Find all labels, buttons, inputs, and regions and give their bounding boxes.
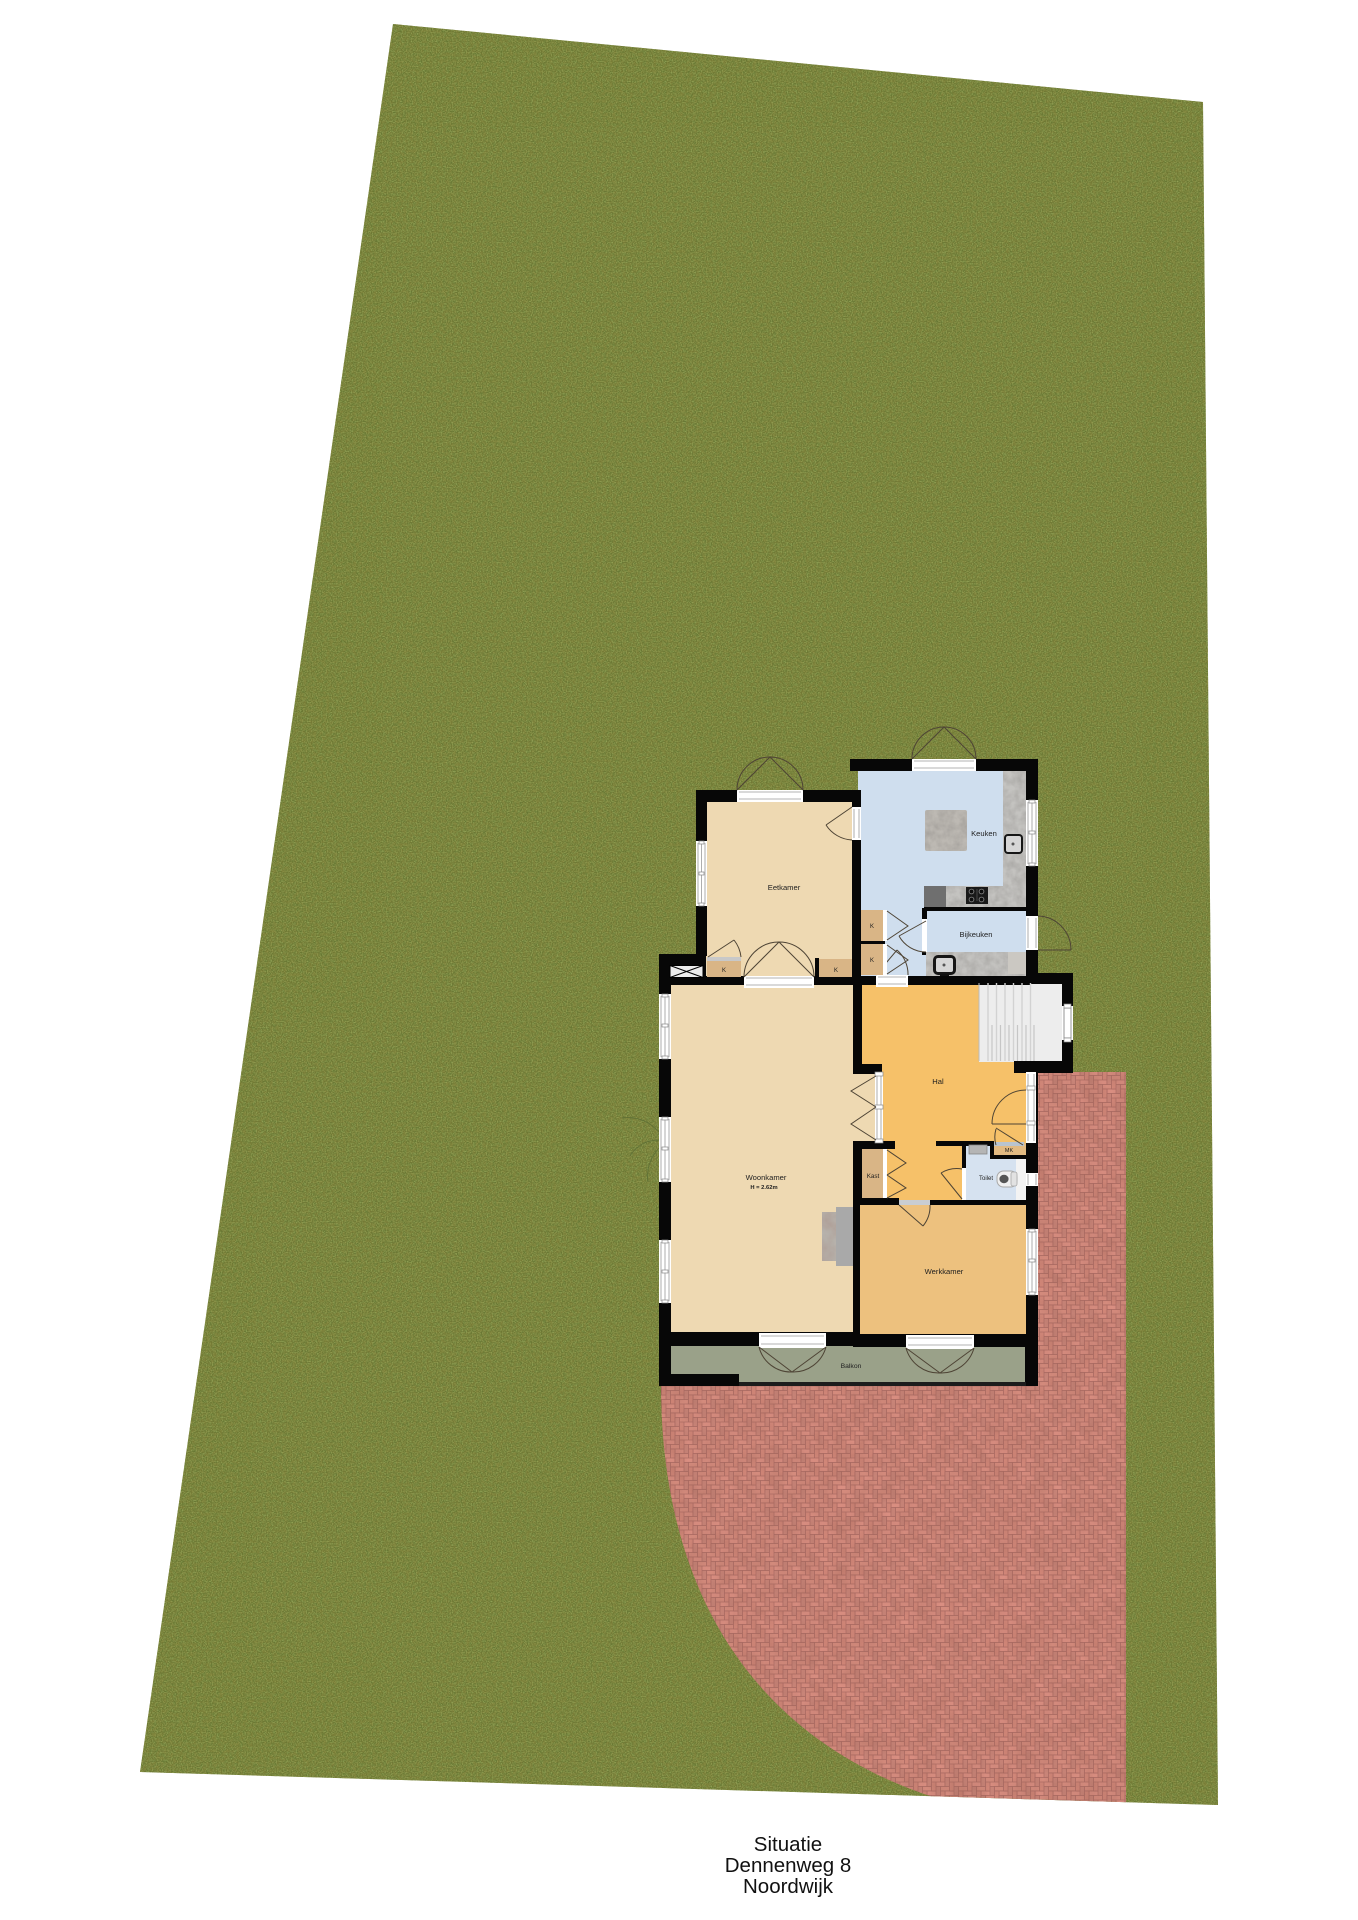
- svg-text:Werkkamer: Werkkamer: [925, 1267, 964, 1276]
- svg-text:K: K: [870, 958, 874, 964]
- svg-text:Situatie: Situatie: [754, 1833, 822, 1856]
- svg-text:Eetkamer: Eetkamer: [768, 883, 801, 892]
- svg-text:K: K: [834, 968, 838, 974]
- svg-text:Balkon: Balkon: [841, 1363, 862, 1370]
- svg-text:H = 2.62m: H = 2.62m: [750, 1185, 777, 1191]
- svg-text:Kast: Kast: [867, 1173, 880, 1180]
- svg-text:Toilet: Toilet: [979, 1176, 993, 1182]
- svg-text:Noordwijk: Noordwijk: [743, 1875, 834, 1898]
- svg-text:Bijkeuken: Bijkeuken: [960, 930, 993, 939]
- svg-text:K: K: [722, 968, 726, 974]
- svg-text:K: K: [870, 924, 874, 930]
- svg-text:Woonkamer: Woonkamer: [746, 1173, 787, 1182]
- svg-text:Hal: Hal: [932, 1077, 944, 1086]
- svg-text:Dennenweg 8: Dennenweg 8: [725, 1854, 852, 1877]
- svg-text:Keuken: Keuken: [971, 829, 997, 838]
- svg-text:MK: MK: [1005, 1148, 1014, 1154]
